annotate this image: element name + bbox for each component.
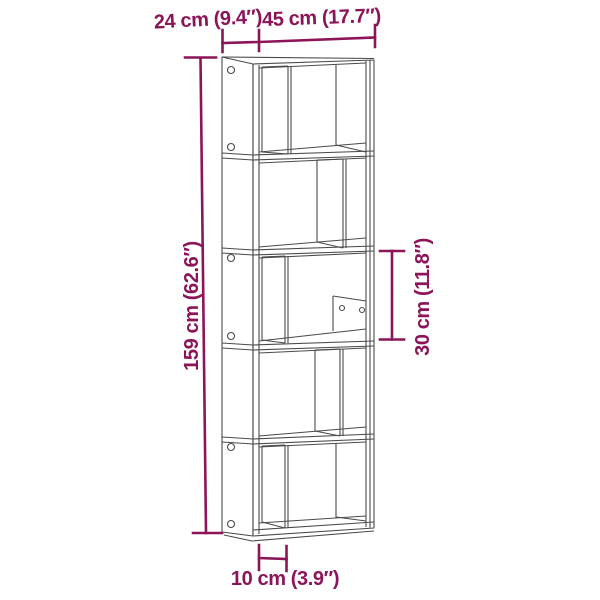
tier4-divider	[315, 349, 343, 436]
tier1-divider	[262, 66, 291, 154]
tier3-divider	[262, 256, 288, 343]
divider-offset-label: 10 cm (3.9″)	[210, 568, 360, 590]
back-panel-hole	[340, 306, 345, 311]
height-label: 159 cm (62.6″)	[181, 231, 203, 381]
tier3-interior	[259, 253, 366, 343]
cam-holes	[228, 67, 235, 528]
front-stiles	[259, 61, 370, 535]
tier2-divider	[317, 159, 346, 248]
tier5-divider	[262, 445, 288, 528]
shelf-height-label: 30 cm (11.8″)	[412, 222, 434, 372]
top-panel-edge	[222, 57, 374, 59]
tier1-interior	[259, 63, 366, 154]
side-panel	[222, 57, 253, 536]
front-face	[253, 60, 374, 536]
bookcase-drawing	[0, 0, 600, 600]
back-panel-hole	[360, 308, 365, 313]
width-label: 45 cm (17.7″)	[262, 5, 383, 31]
tier2-interior	[259, 158, 366, 248]
back-panel	[333, 296, 366, 331]
product-dimension-diagram: 24 cm (9.4″) 45 cm (17.7″) 159 cm (62.6″…	[0, 0, 600, 600]
tier5-interior	[259, 442, 366, 528]
tier4-interior	[259, 348, 366, 436]
bookcase-outline	[222, 57, 374, 541]
shelf-height-dimension-line	[380, 251, 404, 340]
shelf-lines	[222, 151, 374, 530]
